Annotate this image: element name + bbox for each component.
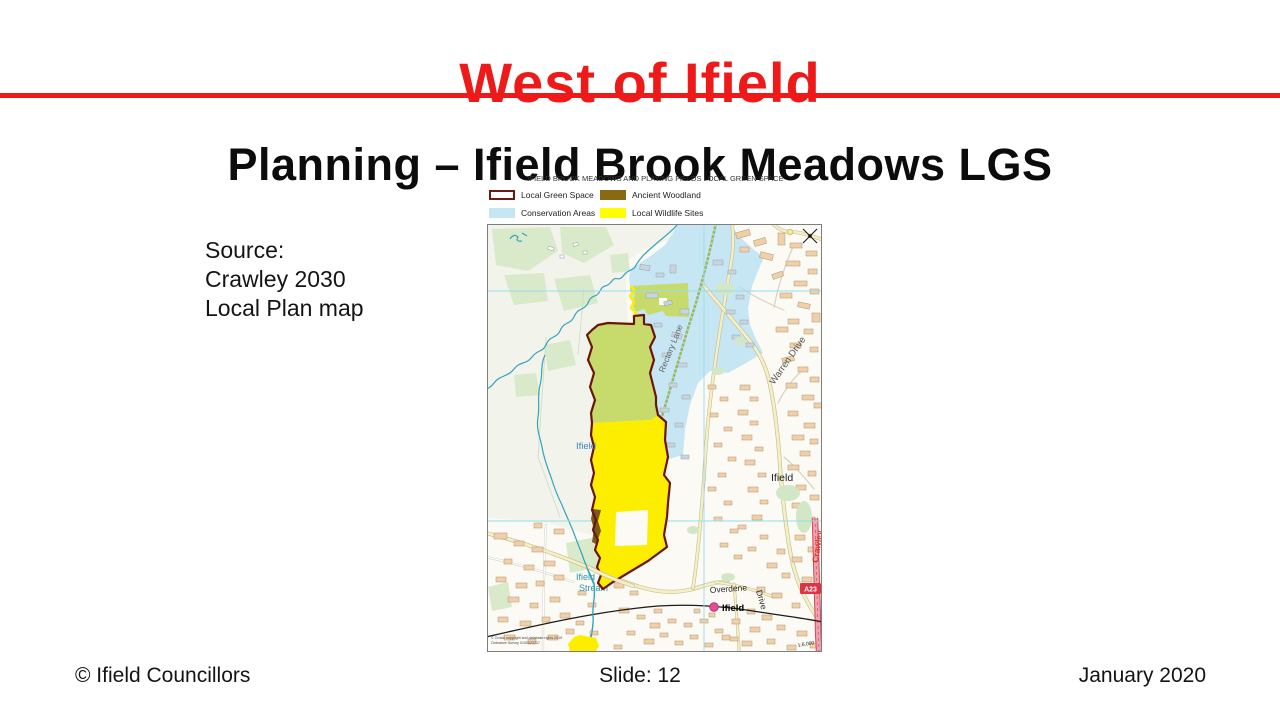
svg-text:© Crown copyright and database: © Crown copyright and database rights 20… xyxy=(491,636,562,640)
svg-text:Ordnance Survey 0100023717: Ordnance Survey 0100023717 xyxy=(491,641,540,645)
roundabout xyxy=(787,229,793,235)
source-line: Crawley 2030 xyxy=(205,265,364,294)
meadow-notch xyxy=(615,510,648,546)
legend-item-conservation-areas: Conservation Areas xyxy=(489,205,600,220)
svg-text:A23: A23 xyxy=(804,587,817,594)
station-marker xyxy=(710,603,719,612)
legend-swatch xyxy=(600,208,626,218)
ifield-station-label: Ifield xyxy=(722,603,744,614)
legend-item-ancient-woodland: Ancient Woodland xyxy=(600,187,722,202)
legend-item-local-wildlife-sites: Local Wildlife Sites xyxy=(600,205,722,220)
legend-swatch xyxy=(600,190,626,200)
legend-swatch xyxy=(489,190,515,200)
legend-label: Conservation Areas xyxy=(521,208,595,218)
page-title: West of Ifield xyxy=(0,50,1280,115)
source-line: Local Plan map xyxy=(205,294,364,323)
source-line: Source: xyxy=(205,236,364,265)
legend-label: Local Wildlife Sites xyxy=(632,208,703,218)
footer-date: January 2020 xyxy=(1079,664,1206,688)
source-note: Source: Crawley 2030 Local Plan map xyxy=(205,236,364,323)
ifield-east-label: Ifield xyxy=(771,472,793,484)
legend-label: Ancient Woodland xyxy=(632,190,701,200)
map-legend: Local Green Space Ancient Woodland Conse… xyxy=(489,187,824,220)
legend-item-local-green-space: Local Green Space xyxy=(489,187,600,202)
map-image: Ifield Stream Rectory Lane Warren Drive … xyxy=(487,224,822,652)
legend-label: Local Green Space xyxy=(521,190,594,200)
a23-badge: A23 xyxy=(800,583,821,594)
accent-divider xyxy=(0,93,1280,98)
map-title: IFIELD BROOK MEADOWS AND PLAYING FIELDS … xyxy=(487,174,824,183)
legend-swatch xyxy=(489,208,515,218)
svg-text:Ifield: Ifield xyxy=(576,572,595,582)
ifield-west-label: Ifield xyxy=(576,441,596,452)
map-figure: IFIELD BROOK MEADOWS AND PLAYING FIELDS … xyxy=(487,174,824,652)
green-space-area xyxy=(587,315,658,423)
map-svg: Ifield Stream Rectory Lane Warren Drive … xyxy=(488,225,821,651)
